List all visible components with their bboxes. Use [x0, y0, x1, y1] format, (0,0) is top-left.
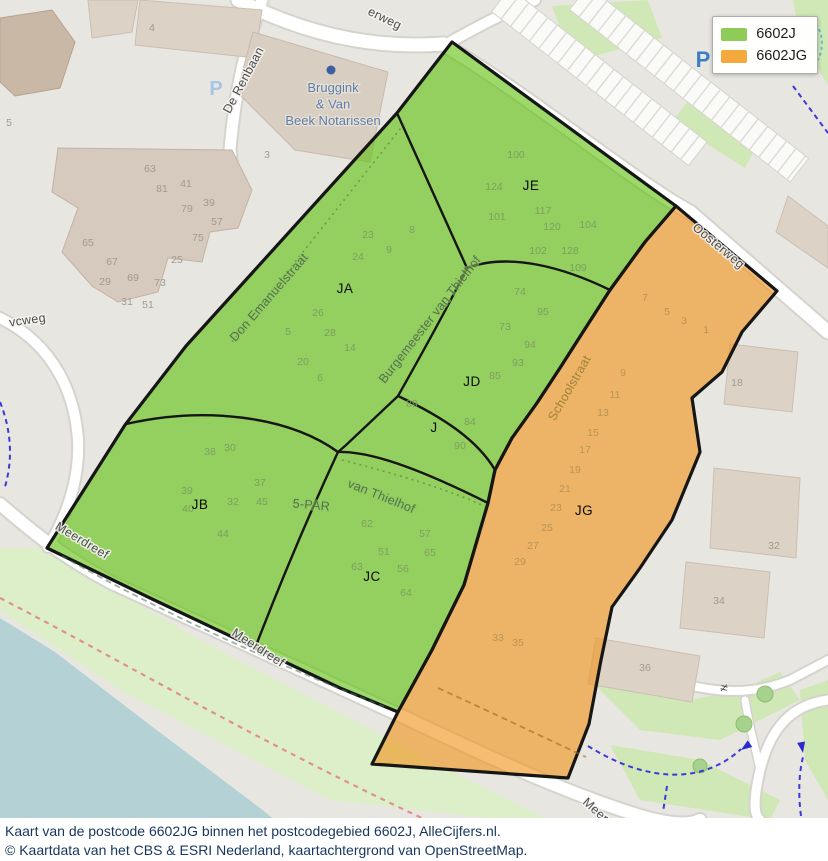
house-number: 21 [559, 483, 571, 495]
house-number: 39 [203, 197, 215, 209]
house-number: 35 [512, 637, 524, 649]
house-number: 8 [409, 224, 415, 236]
house-number: 63 [144, 163, 156, 175]
house-number: 23 [550, 502, 562, 514]
house-number: 36 [639, 662, 651, 674]
house-number: 69 [127, 272, 139, 284]
house-number: 64 [400, 587, 412, 599]
house-number: 5 [6, 117, 12, 129]
legend-swatch-6602j [721, 28, 747, 41]
house-number: 51 [142, 299, 154, 311]
caption-line-1: Kaart van de postcode 6602JG binnen het … [5, 822, 828, 841]
region-label-j: J [430, 420, 437, 435]
parking-icon: P [209, 78, 222, 100]
house-number: 28 [324, 327, 336, 339]
region-label-jg: JG [575, 503, 593, 518]
region-label-jc: JC [363, 569, 381, 584]
house-number: 5 [285, 326, 291, 338]
region-label-ja: JA [337, 281, 354, 296]
house-number: 5 [664, 306, 670, 318]
house-number: 20 [297, 356, 309, 368]
house-number: 14 [344, 342, 356, 354]
map-caption: Kaart van de postcode 6602JG binnen het … [0, 818, 828, 861]
house-number: 65 [82, 237, 94, 249]
house-number: 11 [610, 389, 621, 401]
house-number: 94 [524, 339, 536, 351]
house-number: 90 [454, 440, 466, 452]
region-label-jb: JB [192, 497, 209, 512]
house-number: 29 [514, 556, 526, 568]
legend-label-6602jg: 6602JG [756, 48, 807, 64]
house-number: 23 [362, 229, 374, 241]
house-number: 37 [254, 477, 266, 489]
house-number: 39 [181, 485, 193, 497]
house-number: 13 [597, 407, 609, 419]
house-number: 124 [485, 181, 503, 193]
house-number: 9 [620, 367, 626, 379]
house-number: 26 [312, 307, 324, 319]
house-number: 102 [529, 245, 547, 257]
house-number: 25 [541, 522, 553, 534]
house-number: 18 [731, 377, 743, 389]
house-number: 73 [499, 321, 511, 333]
house-number: 56 [397, 563, 409, 575]
house-number: 17 [579, 444, 591, 456]
house-number: 29 [99, 276, 111, 288]
house-number: 93 [512, 357, 524, 369]
house-number: 67 [106, 256, 118, 268]
house-number: 3 [264, 149, 270, 161]
house-number: 6 [317, 372, 323, 384]
house-number: 41 [180, 178, 192, 190]
house-number: 79 [181, 203, 193, 215]
house-number: 34 [713, 595, 725, 607]
legend-item-6602j: 6602J [721, 23, 807, 45]
house-number: 104 [579, 219, 597, 231]
house-number: 3 [681, 315, 687, 327]
legend-swatch-6602jg [721, 50, 747, 63]
house-number: 101 [488, 211, 506, 223]
house-number: 4 [149, 22, 155, 34]
house-number: 25 [171, 254, 183, 266]
house-number: 120 [543, 221, 561, 233]
house-number: 9 [386, 244, 392, 256]
house-number: 63 [351, 561, 363, 573]
house-number: 57 [419, 528, 431, 540]
house-number: 95 [537, 306, 549, 318]
house-number: 89 [406, 398, 418, 410]
notary-poi-dot [327, 66, 336, 75]
house-number: 15 [587, 427, 599, 439]
house-number: 19 [569, 464, 581, 476]
house-number: 81 [156, 183, 168, 195]
house-number: 24 [352, 251, 364, 263]
house-number: 31 [121, 296, 133, 308]
house-number: 45 [256, 496, 268, 508]
house-number: 1 [703, 324, 709, 336]
house-number: 75 [192, 232, 204, 244]
house-number: 7 [642, 292, 648, 304]
region-label-je: JE [523, 178, 540, 193]
house-number: 128 [561, 245, 579, 257]
house-number: 38 [204, 446, 216, 458]
map-legend: 6602J 6602JG [712, 16, 818, 74]
house-number: 84 [464, 416, 476, 428]
house-number: 51 [378, 546, 390, 558]
house-number: 27 [527, 540, 539, 552]
house-number: 65 [424, 547, 436, 559]
house-number: 33 [492, 632, 504, 644]
house-number: 32 [227, 496, 239, 508]
parking-icon: P [696, 47, 711, 72]
house-number: 62 [361, 518, 373, 530]
map-page: De RenbaanerwegvcwegDon EmanuelstraatBur… [0, 0, 828, 861]
caption-line-2: © Kaartdata van het CBS & ESRI Nederland… [5, 841, 828, 860]
house-number: 32 [768, 540, 780, 552]
house-number: 44 [217, 528, 229, 540]
house-number: 117 [535, 205, 552, 217]
legend-item-6602jg: 6602JG [721, 45, 807, 67]
house-number: 85 [489, 370, 501, 382]
house-number: 73 [154, 277, 166, 289]
region-label-jd: JD [463, 374, 481, 389]
house-number: 74 [514, 286, 526, 298]
house-number: 57 [211, 216, 223, 228]
house-number: 100 [507, 149, 525, 161]
legend-label-6602j: 6602J [756, 26, 796, 42]
house-number: 109 [569, 262, 587, 274]
map-canvas[interactable]: De RenbaanerwegvcwegDon EmanuelstraatBur… [0, 0, 828, 818]
house-number: 30 [224, 442, 236, 454]
